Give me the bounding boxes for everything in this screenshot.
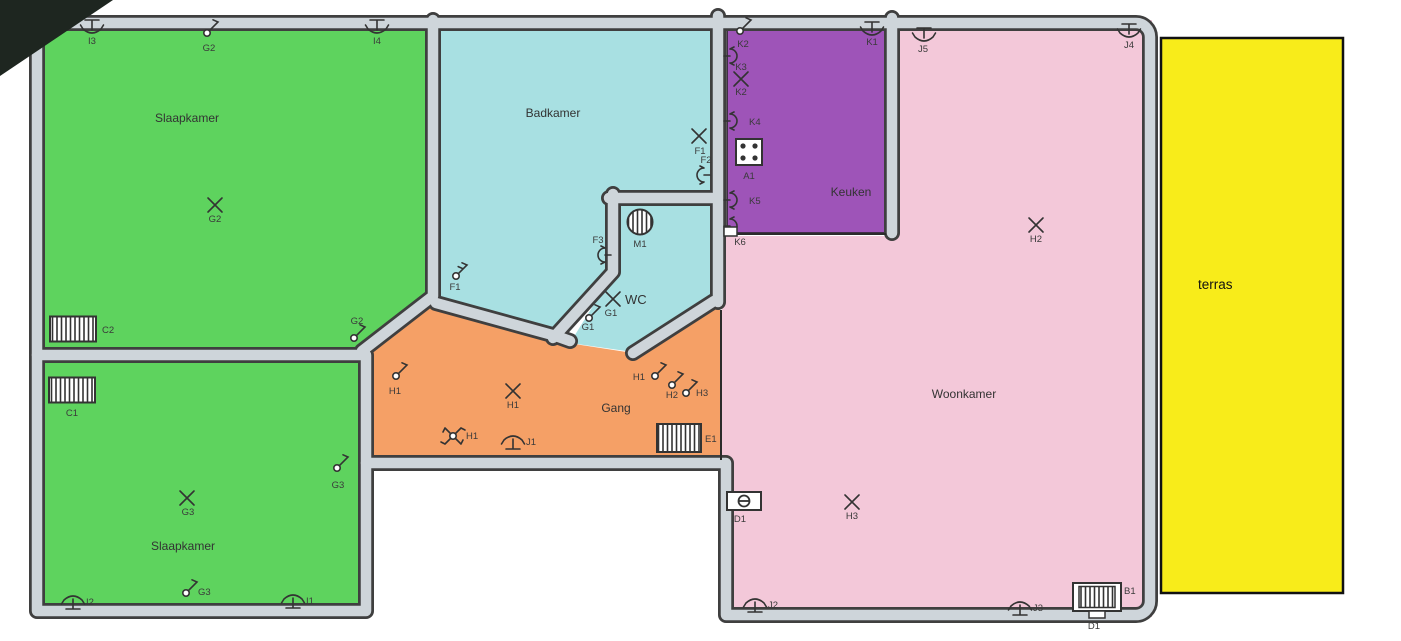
svg-text:H2: H2 [666,390,678,401]
svg-text:C2: C2 [102,325,114,336]
svg-text:C1: C1 [66,408,78,419]
bedroom-bottom-label: Slaapkamer [151,539,215,553]
svg-text:B1: B1 [1124,586,1136,597]
svg-text:G1: G1 [582,322,595,333]
svg-text:I2: I2 [86,597,94,608]
svg-text:A1: A1 [743,171,755,182]
svg-text:H1: H1 [633,372,645,383]
hall-label: Gang [601,401,630,415]
svg-text:F1: F1 [449,282,460,293]
svg-text:G1: G1 [605,308,618,319]
svg-text:H1: H1 [389,386,401,397]
bathroom-label: Badkamer [526,106,581,120]
bedroom-top-label: Slaapkamer [155,111,219,125]
svg-text:H1: H1 [466,431,478,442]
svg-text:J3: J3 [1033,603,1043,614]
svg-text:I3: I3 [88,36,96,47]
svg-text:D1: D1 [1088,621,1100,632]
svg-text:E1: E1 [705,434,717,445]
svg-text:I1: I1 [306,596,314,607]
svg-text:G3: G3 [198,587,211,598]
svg-text:F2: F2 [700,155,711,166]
svg-text:J4: J4 [1124,40,1134,51]
svg-text:K3: K3 [735,62,747,73]
living-label: Woonkamer [932,387,996,401]
svg-text:G2: G2 [203,43,216,54]
svg-text:K2: K2 [737,39,749,50]
svg-text:I4: I4 [373,36,381,47]
boiler-connection-label: D1 [1088,621,1100,632]
svg-text:K4: K4 [749,117,761,128]
svg-text:G2: G2 [351,316,364,327]
svg-text:J5: J5 [918,44,928,55]
svg-text:D1: D1 [734,514,746,525]
svg-text:H3: H3 [846,511,858,522]
svg-text:K1: K1 [866,37,878,48]
svg-text:J1: J1 [526,437,536,448]
svg-text:F3: F3 [592,235,603,246]
svg-text:J2: J2 [768,600,778,611]
svg-text:H3: H3 [696,388,708,399]
svg-text:K6: K6 [734,237,746,248]
svg-text:G2: G2 [209,214,222,225]
wc-label: WC [625,292,647,307]
terrace-label: terras [1198,277,1233,292]
terrace: terras [1161,38,1343,593]
svg-text:G3: G3 [182,507,195,518]
svg-text:G3: G3 [332,480,345,491]
svg-text:H1: H1 [507,400,519,411]
floorplan-page: terras Slaapkamer Slaapkamer Badkamer WC… [0,0,1401,641]
svg-text:H2: H2 [1030,234,1042,245]
svg-text:K5: K5 [749,196,761,207]
svg-text:K2: K2 [735,87,747,98]
kitchen-label: Keuken [831,185,872,199]
svg-text:M1: M1 [633,239,646,250]
room-bedroom-top [37,20,433,352]
floorplan-drawing: terras Slaapkamer Slaapkamer Badkamer WC… [0,0,1401,641]
